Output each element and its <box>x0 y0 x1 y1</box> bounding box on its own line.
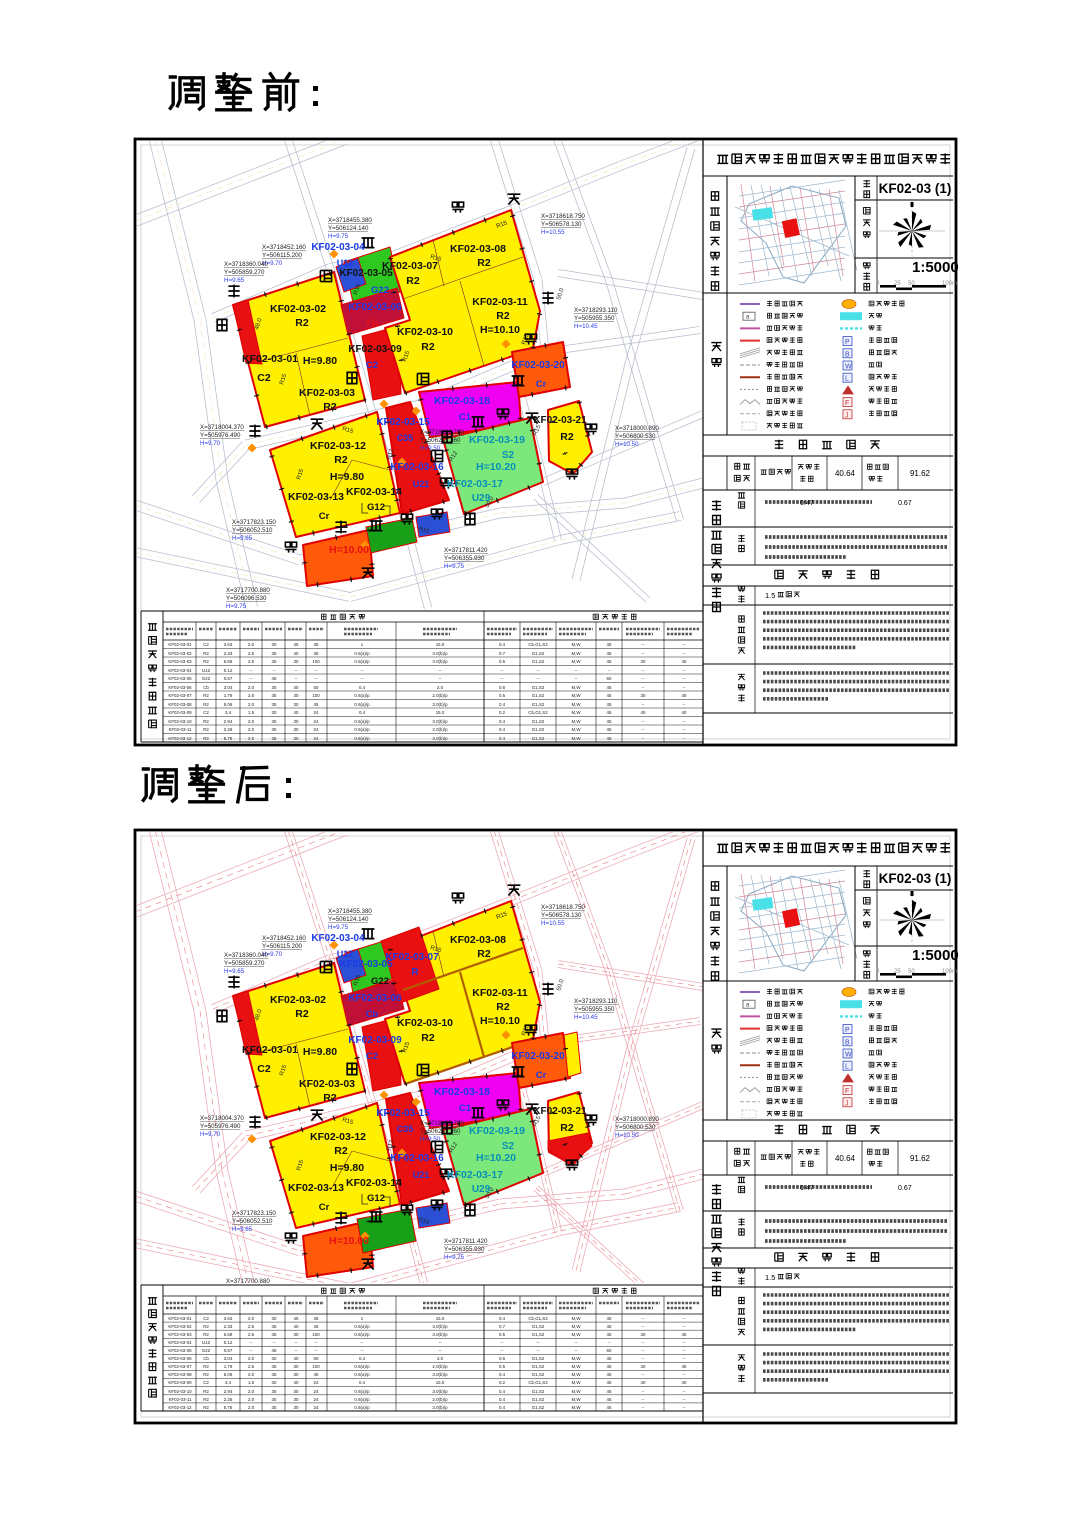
svg-text:30: 30 <box>272 1316 277 1321</box>
svg-text:35: 35 <box>272 736 277 741</box>
svg-text:Y=506241.360: Y=506241.360 <box>420 437 461 444</box>
svg-text:KF02-03-07: KF02-03-07 <box>168 1364 192 1369</box>
svg-text:Cr: Cr <box>319 511 330 522</box>
svg-text:U12: U12 <box>337 949 354 959</box>
svg-text:KF02-03-18: KF02-03-18 <box>434 395 490 407</box>
svg-text:X=3717823.150: X=3717823.150 <box>232 519 276 526</box>
svg-text:KF02-03-17: KF02-03-17 <box>447 478 503 490</box>
svg-text:KF02-03-02: KF02-03-02 <box>168 1324 192 1329</box>
svg-text:0.6(a)/p: 0.6(a)/p <box>354 736 370 741</box>
svg-text:H=10.55: H=10.55 <box>541 229 565 236</box>
svg-text:3.0(b)/p: 3.0(b)/p <box>432 1324 448 1329</box>
svg-text:R2: R2 <box>323 401 337 413</box>
svg-text:2.94: 2.94 <box>224 1389 233 1394</box>
svg-text:5.59: 5.59 <box>224 659 233 664</box>
svg-text:1.5: 1.5 <box>248 710 255 715</box>
svg-text:2.0: 2.0 <box>248 736 255 741</box>
svg-text:40: 40 <box>294 1356 299 1361</box>
svg-text:100: 100 <box>312 1364 320 1369</box>
svg-text:2.5: 2.5 <box>248 1324 255 1329</box>
svg-text:45: 45 <box>607 727 612 732</box>
svg-text:KF02-03-03: KF02-03-03 <box>299 1078 355 1090</box>
svg-text:2.0: 2.0 <box>248 1316 255 1321</box>
svg-text:Y=506115.200: Y=506115.200 <box>262 252 303 259</box>
svg-text:2.26: 2.26 <box>224 1397 233 1402</box>
svg-text:G1,S2: G1,S2 <box>532 727 545 732</box>
svg-text:R2: R2 <box>477 257 491 269</box>
svg-text:R2: R2 <box>496 310 510 322</box>
svg-text:H=9.70: H=9.70 <box>200 440 221 447</box>
svg-text:0.4: 0.4 <box>499 1405 506 1410</box>
svg-text:KF02-03-12: KF02-03-12 <box>310 440 366 452</box>
svg-text:45: 45 <box>607 1332 612 1337</box>
svg-text:G1,S2: G1,S2 <box>532 659 545 664</box>
svg-text:3.0(b)/p: 3.0(b)/p <box>432 651 448 656</box>
svg-text:45: 45 <box>272 676 277 681</box>
svg-text:B: B <box>845 1039 850 1046</box>
svg-text:U12: U12 <box>337 258 354 268</box>
svg-text:KF02-03-05: KF02-03-05 <box>168 676 192 681</box>
svg-text:30: 30 <box>641 1364 646 1369</box>
svg-text:R2: R2 <box>477 948 491 960</box>
svg-text:3.63: 3.63 <box>224 642 233 647</box>
svg-text:60: 60 <box>607 676 612 681</box>
svg-text:H=9.80: H=9.80 <box>303 355 337 367</box>
svg-text:Y=506355.930: Y=506355.930 <box>444 555 485 562</box>
svg-text:M,W: M,W <box>571 1372 581 1377</box>
svg-text:KF02-03-04: KF02-03-04 <box>311 933 365 944</box>
svg-text:Y=506241.360: Y=506241.360 <box>420 1128 461 1135</box>
svg-text:45: 45 <box>682 1364 687 1369</box>
svg-text:G1,S2: G1,S2 <box>532 1397 545 1402</box>
svg-text:KF02-03-01: KF02-03-01 <box>168 642 192 647</box>
svg-text:45: 45 <box>314 1372 319 1377</box>
svg-text:KF02-03-09: KF02-03-09 <box>168 710 192 715</box>
svg-text:X=3718004.370: X=3718004.370 <box>200 424 244 431</box>
svg-text:KF02-03-06: KF02-03-06 <box>348 302 402 313</box>
svg-text:5.75: 5.75 <box>224 1405 233 1410</box>
svg-text:0.5: 0.5 <box>499 1332 506 1337</box>
svg-text:H=10.50: H=10.50 <box>615 441 639 448</box>
svg-text:40: 40 <box>682 1380 687 1385</box>
svg-text:R2: R2 <box>203 1372 209 1377</box>
svg-text:KF02-03-10: KF02-03-10 <box>168 719 192 724</box>
svg-text:KF02-03-18: KF02-03-18 <box>434 1086 490 1098</box>
svg-text:Cb: Cb <box>366 1009 378 1019</box>
svg-text:KF02-03-08: KF02-03-08 <box>450 934 506 946</box>
svg-text:0.4: 0.4 <box>499 727 506 732</box>
svg-text:R2: R2 <box>496 1001 510 1013</box>
svg-text:L: L <box>845 376 849 383</box>
svg-text:60: 60 <box>314 685 319 690</box>
svg-text:0.6(a)/p: 0.6(a)/p <box>354 1389 370 1394</box>
svg-text:0.67: 0.67 <box>224 676 233 681</box>
svg-text:KF02-03-05: KF02-03-05 <box>168 1348 192 1353</box>
svg-text:0.6(a)/p: 0.6(a)/p <box>354 719 370 724</box>
svg-text:C2: C2 <box>257 1063 271 1075</box>
svg-text:2.26: 2.26 <box>224 727 233 732</box>
svg-text:100: 100 <box>312 693 320 698</box>
svg-text:C1: C1 <box>459 412 472 423</box>
svg-text:G1,S2: G1,S2 <box>532 1405 545 1410</box>
svg-text:30: 30 <box>294 693 299 698</box>
svg-text:KF02-03-07: KF02-03-07 <box>385 952 439 963</box>
svg-text:KF02-03-14: KF02-03-14 <box>346 1177 402 1189</box>
svg-text:M,W: M,W <box>571 1356 581 1361</box>
svg-text:24: 24 <box>314 1380 319 1385</box>
svg-text:2.5: 2.5 <box>248 1332 255 1337</box>
svg-text:0.12: 0.12 <box>224 1340 233 1345</box>
svg-text:0.4: 0.4 <box>499 1316 506 1321</box>
svg-text:H=9.75: H=9.75 <box>444 563 465 570</box>
svg-text:KF02-03-15: KF02-03-15 <box>376 1108 430 1119</box>
svg-text:KF02-03-04: KF02-03-04 <box>168 668 192 673</box>
svg-text:Y=505976.490: Y=505976.490 <box>200 1123 241 1130</box>
svg-text:H=9.75: H=9.75 <box>328 233 349 240</box>
svg-text:M,W: M,W <box>571 736 581 741</box>
svg-text:KF02-03-04: KF02-03-04 <box>168 1340 192 1345</box>
svg-text:R2: R2 <box>203 1332 209 1337</box>
svg-text:X=3718455.380: X=3718455.380 <box>328 908 372 915</box>
svg-text:45: 45 <box>607 685 612 690</box>
svg-text:3.0(b)/p: 3.0(b)/p <box>432 1405 448 1410</box>
svg-text:0.4: 0.4 <box>499 719 506 724</box>
svg-text:U29: U29 <box>472 1184 491 1195</box>
svg-text:35: 35 <box>272 719 277 724</box>
svg-text:R2: R2 <box>421 1032 435 1044</box>
svg-text:U21: U21 <box>413 479 430 489</box>
svg-text:M,W: M,W <box>571 719 581 724</box>
svg-text:M,W: M,W <box>571 727 581 732</box>
svg-text:0.6(a)/p: 0.6(a)/p <box>354 1324 370 1329</box>
svg-text:5.06: 5.06 <box>224 1372 233 1377</box>
svg-text:1.5: 1.5 <box>765 1273 775 1282</box>
svg-text:45: 45 <box>607 1397 612 1402</box>
svg-text:KF02-03-02: KF02-03-02 <box>270 303 326 315</box>
svg-text:Y=506124.140: Y=506124.140 <box>328 916 369 923</box>
svg-text:Y=505955.350: Y=505955.350 <box>574 1006 615 1013</box>
svg-text:40: 40 <box>294 651 299 656</box>
svg-text:100: 100 <box>312 659 320 664</box>
svg-text:M,W: M,W <box>571 1316 581 1321</box>
svg-text:24: 24 <box>314 710 319 715</box>
svg-text:R2: R2 <box>203 1364 209 1369</box>
svg-text:36: 36 <box>314 651 319 656</box>
svg-text:45: 45 <box>607 1316 612 1321</box>
svg-text:2.0: 2.0 <box>248 719 255 724</box>
svg-text:H=9.65: H=9.65 <box>224 968 245 975</box>
svg-text:KF02-03-01: KF02-03-01 <box>168 1316 192 1321</box>
svg-text:Cb: Cb <box>203 1356 209 1361</box>
svg-text:C1: C1 <box>459 1103 472 1114</box>
svg-text:C35: C35 <box>397 1124 414 1134</box>
svg-text:24: 24 <box>314 719 319 724</box>
svg-text:R2: R2 <box>203 727 209 732</box>
svg-text:H=9.80: H=9.80 <box>330 1162 364 1174</box>
svg-text:40: 40 <box>641 1380 646 1385</box>
svg-text:KF02-03-08: KF02-03-08 <box>450 243 506 255</box>
svg-text:M,W: M,W <box>571 659 581 664</box>
svg-text:C2: C2 <box>203 1316 209 1321</box>
svg-text:1.5: 1.5 <box>248 1380 255 1385</box>
svg-text:2.0: 2.0 <box>248 1389 255 1394</box>
svg-text:3.0(b)/p: 3.0(b)/p <box>432 659 448 664</box>
svg-text:G1,S2: G1,S2 <box>532 693 545 698</box>
svg-text:KF02-03-17: KF02-03-17 <box>447 1169 503 1181</box>
svg-text:2.0: 2.0 <box>437 685 444 690</box>
svg-text:R2: R2 <box>203 659 209 664</box>
svg-text:W: W <box>845 364 852 371</box>
svg-text:35: 35 <box>272 727 277 732</box>
svg-text:40.64: 40.64 <box>835 1154 856 1163</box>
svg-text:KF02-03-01: KF02-03-01 <box>242 353 298 365</box>
svg-text:R2: R2 <box>323 1092 337 1104</box>
svg-text:0.5: 0.5 <box>499 693 506 698</box>
svg-text:2.94: 2.94 <box>224 719 233 724</box>
svg-text:0.6: 0.6 <box>499 1356 506 1361</box>
svg-text:45: 45 <box>607 1405 612 1410</box>
svg-text:45: 45 <box>607 1356 612 1361</box>
svg-text:KF02-03-11: KF02-03-11 <box>472 987 528 999</box>
svg-text:M,W: M,W <box>571 1380 581 1385</box>
svg-text:2.0: 2.0 <box>248 1372 255 1377</box>
svg-text:30: 30 <box>294 736 299 741</box>
svg-text:X=3717811.420: X=3717811.420 <box>444 1238 488 1245</box>
svg-text:KF02-03-13: KF02-03-13 <box>288 1182 344 1194</box>
svg-text:R2: R2 <box>203 719 209 724</box>
svg-text:0.6: 0.6 <box>499 685 506 690</box>
svg-text:3.0(b)/p: 3.0(b)/p <box>432 702 448 707</box>
svg-text:3.0(b)/p: 3.0(b)/p <box>432 1372 448 1377</box>
svg-text:M,W: M,W <box>571 1389 581 1394</box>
svg-text:KF02-03-08: KF02-03-08 <box>168 1372 192 1377</box>
svg-text:H=9.65: H=9.65 <box>224 277 245 284</box>
svg-text:5.06: 5.06 <box>224 702 233 707</box>
svg-text:Y=505955.350: Y=505955.350 <box>574 315 615 322</box>
svg-text:24: 24 <box>314 1397 319 1402</box>
svg-text:30: 30 <box>294 727 299 732</box>
svg-text:2.5: 2.5 <box>248 693 255 698</box>
svg-text:KF02-03-20: KF02-03-20 <box>511 360 565 371</box>
svg-text:X=3717811.420: X=3717811.420 <box>444 547 488 554</box>
svg-text:H=9.70: H=9.70 <box>200 1131 221 1138</box>
svg-text:R2: R2 <box>203 693 209 698</box>
svg-text:45: 45 <box>607 710 612 715</box>
svg-text:0.6(a)/p: 0.6(a)/p <box>354 659 370 664</box>
svg-text:35: 35 <box>272 1389 277 1394</box>
svg-text:24: 24 <box>314 736 319 741</box>
svg-text:G1,S2: G1,S2 <box>532 1324 545 1329</box>
svg-text:M,W: M,W <box>571 1397 581 1402</box>
svg-text:H=10.00: H=10.00 <box>329 544 369 556</box>
svg-text:40.64: 40.64 <box>835 469 856 478</box>
svg-text:P: P <box>845 339 850 346</box>
svg-text:30: 30 <box>641 659 646 664</box>
svg-text:0.47: 0.47 <box>800 1185 814 1192</box>
svg-text:0.4: 0.4 <box>499 702 506 707</box>
svg-text:3.04: 3.04 <box>224 1356 233 1361</box>
svg-text:KF02-03-03: KF02-03-03 <box>168 1332 192 1337</box>
svg-text:H=10.20: H=10.20 <box>476 1152 516 1164</box>
svg-text:X=3718360.040: X=3718360.040 <box>224 952 268 959</box>
svg-text:2.0(b)/p: 2.0(b)/p <box>432 1364 448 1369</box>
svg-text:2.33: 2.33 <box>224 651 233 656</box>
svg-text:H=9.75: H=9.75 <box>328 924 349 931</box>
svg-text:45: 45 <box>607 1364 612 1369</box>
svg-text:45: 45 <box>607 1389 612 1394</box>
svg-text:C2: C2 <box>366 360 378 371</box>
svg-text:0.4: 0.4 <box>499 1397 506 1402</box>
svg-text:35: 35 <box>272 651 277 656</box>
svg-text:S2: S2 <box>502 1141 515 1152</box>
svg-text:G12: G12 <box>367 502 385 513</box>
svg-text:H=9.75: H=9.75 <box>226 603 247 610</box>
svg-text:F: F <box>845 1088 849 1095</box>
svg-text:2.0: 2.0 <box>248 1405 255 1410</box>
svg-text:40: 40 <box>294 685 299 690</box>
svg-text:KF02-03-12: KF02-03-12 <box>168 736 192 741</box>
svg-text:KF02-03-08: KF02-03-08 <box>168 702 192 707</box>
svg-text:Cb,G1,S2: Cb,G1,S2 <box>528 1316 548 1321</box>
svg-text:KF02-03-21: KF02-03-21 <box>533 1106 587 1117</box>
svg-text:F: F <box>845 400 849 407</box>
svg-text:40: 40 <box>294 1380 299 1385</box>
svg-text:45: 45 <box>294 642 299 647</box>
svg-text:15.0: 15.0 <box>436 710 445 715</box>
svg-text:15.0: 15.0 <box>436 1316 445 1321</box>
svg-text:Fb: Fb <box>367 318 378 328</box>
svg-text:H=9.80: H=9.80 <box>303 1046 337 1058</box>
svg-text:KF02-03-13: KF02-03-13 <box>288 491 344 503</box>
svg-text:C2: C2 <box>203 710 209 715</box>
svg-text:G1,S2: G1,S2 <box>532 651 545 656</box>
svg-text:0.6(a)/p: 0.6(a)/p <box>354 1372 370 1377</box>
svg-text:KF02-03-12: KF02-03-12 <box>310 1131 366 1143</box>
svg-text:45: 45 <box>607 719 612 724</box>
svg-text:B: B <box>845 351 850 358</box>
svg-text:30: 30 <box>641 693 646 698</box>
svg-text:Y=506096.530: Y=506096.530 <box>226 595 267 602</box>
svg-text:0.7: 0.7 <box>499 651 506 656</box>
svg-text:30: 30 <box>272 1380 277 1385</box>
svg-text:35: 35 <box>272 1324 277 1329</box>
svg-text:H=10.20: H=10.20 <box>476 461 516 473</box>
svg-text:45: 45 <box>607 1380 612 1385</box>
svg-text:H=9.65: H=9.65 <box>232 1226 253 1233</box>
svg-text:KF02-03-02: KF02-03-02 <box>270 994 326 1006</box>
svg-text:2.5: 2.5 <box>248 651 255 656</box>
svg-text:C2: C2 <box>203 1380 209 1385</box>
svg-text:Y=505859.270: Y=505859.270 <box>224 960 265 967</box>
svg-text:KF02-03-12: KF02-03-12 <box>168 1405 192 1410</box>
svg-text:KF02-03 (1): KF02-03 (1) <box>879 181 952 196</box>
svg-text:0.47: 0.47 <box>800 500 814 507</box>
svg-text:X=3718000.890: X=3718000.890 <box>615 1116 659 1123</box>
svg-text:3.4: 3.4 <box>225 710 232 715</box>
svg-text:C2: C2 <box>203 642 209 647</box>
svg-text:24: 24 <box>314 1405 319 1410</box>
svg-text:U21: U21 <box>413 1170 430 1180</box>
svg-text:H=10.45: H=10.45 <box>574 1014 598 1021</box>
svg-text:Y=506124.140: Y=506124.140 <box>328 225 369 232</box>
svg-text:Y=506800.530: Y=506800.530 <box>615 433 656 440</box>
svg-text:35: 35 <box>272 1372 277 1377</box>
svg-text:R2: R2 <box>203 1389 209 1394</box>
svg-text:KF02-03-19: KF02-03-19 <box>469 1125 525 1137</box>
svg-text:G22: G22 <box>202 676 211 681</box>
svg-text:2.0: 2.0 <box>248 642 255 647</box>
svg-text:Y=506800.530: Y=506800.530 <box>615 1124 656 1131</box>
svg-text:H=10.00: H=10.00 <box>329 1235 369 1247</box>
svg-text:KF02-03-16: KF02-03-16 <box>390 462 444 473</box>
svg-text:45: 45 <box>272 1348 277 1353</box>
svg-text:Cr: Cr <box>536 1070 547 1081</box>
svg-text:M,W: M,W <box>571 710 581 715</box>
svg-text:KF02-03-09: KF02-03-09 <box>168 1380 192 1385</box>
svg-text:M,W: M,W <box>571 651 581 656</box>
svg-text:H=10.10: H=10.10 <box>480 1015 520 1027</box>
svg-text:0.5: 0.5 <box>499 659 506 664</box>
svg-text:30: 30 <box>294 702 299 707</box>
svg-text:X=3718293.110: X=3718293.110 <box>574 307 618 314</box>
svg-text:G12: G12 <box>367 1193 385 1204</box>
svg-text:X=3718004.370: X=3718004.370 <box>200 1115 244 1122</box>
svg-text:0.6(a)/p: 0.6(a)/p <box>354 693 370 698</box>
svg-text:G1,S2: G1,S2 <box>532 702 545 707</box>
svg-text:1:5000: 1:5000 <box>912 259 959 276</box>
svg-text:45: 45 <box>607 1324 612 1329</box>
svg-text:R2: R2 <box>295 317 309 329</box>
svg-text:0.6(a)/p: 0.6(a)/p <box>354 1364 370 1369</box>
svg-text:1.79: 1.79 <box>224 1364 233 1369</box>
svg-text:C2: C2 <box>257 372 271 384</box>
svg-text:30: 30 <box>294 1397 299 1402</box>
svg-text:0.6(a)/p: 0.6(a)/p <box>354 727 370 732</box>
svg-text:W: W <box>845 1052 852 1059</box>
svg-text:0.4: 0.4 <box>499 736 506 741</box>
svg-text:30: 30 <box>294 1389 299 1394</box>
svg-text:30: 30 <box>294 659 299 664</box>
svg-text:3.0(b)/p: 3.0(b)/p <box>432 1332 448 1337</box>
svg-text:3.0(b)/p: 3.0(b)/p <box>432 719 448 724</box>
svg-text:0.4: 0.4 <box>499 1372 506 1377</box>
svg-text:KF02-03-02: KF02-03-02 <box>168 651 192 656</box>
svg-text:0.4: 0.4 <box>359 1356 366 1361</box>
svg-text:M,W: M,W <box>571 702 581 707</box>
svg-text:X=3717823.150: X=3717823.150 <box>232 1210 276 1217</box>
svg-text:40: 40 <box>294 710 299 715</box>
svg-text:J: J <box>845 412 849 419</box>
svg-text:0.6(a)/p: 0.6(a)/p <box>354 1332 370 1337</box>
svg-text:35: 35 <box>272 1397 277 1402</box>
svg-text:30: 30 <box>272 1356 277 1361</box>
svg-text:40: 40 <box>294 1324 299 1329</box>
svg-text:1.5: 1.5 <box>765 591 775 600</box>
svg-text:Cb,G1,S2: Cb,G1,S2 <box>528 642 548 647</box>
svg-text:KF02-03-01: KF02-03-01 <box>242 1044 298 1056</box>
svg-text:5.59: 5.59 <box>224 1332 233 1337</box>
svg-text:2.0: 2.0 <box>248 1356 255 1361</box>
svg-text:0.67: 0.67 <box>898 1185 912 1192</box>
svg-text:KF02-03-19: KF02-03-19 <box>469 434 525 446</box>
svg-text:45: 45 <box>607 702 612 707</box>
svg-text:36: 36 <box>314 642 319 647</box>
svg-text:KF02-03-15: KF02-03-15 <box>376 417 430 428</box>
svg-text:X=3718452.160: X=3718452.160 <box>262 244 306 251</box>
svg-text:3.0(b)/p: 3.0(b)/p <box>432 736 448 741</box>
svg-text:H=10.10: H=10.10 <box>480 324 520 336</box>
svg-text:Cb,G1,S2: Cb,G1,S2 <box>528 710 548 715</box>
